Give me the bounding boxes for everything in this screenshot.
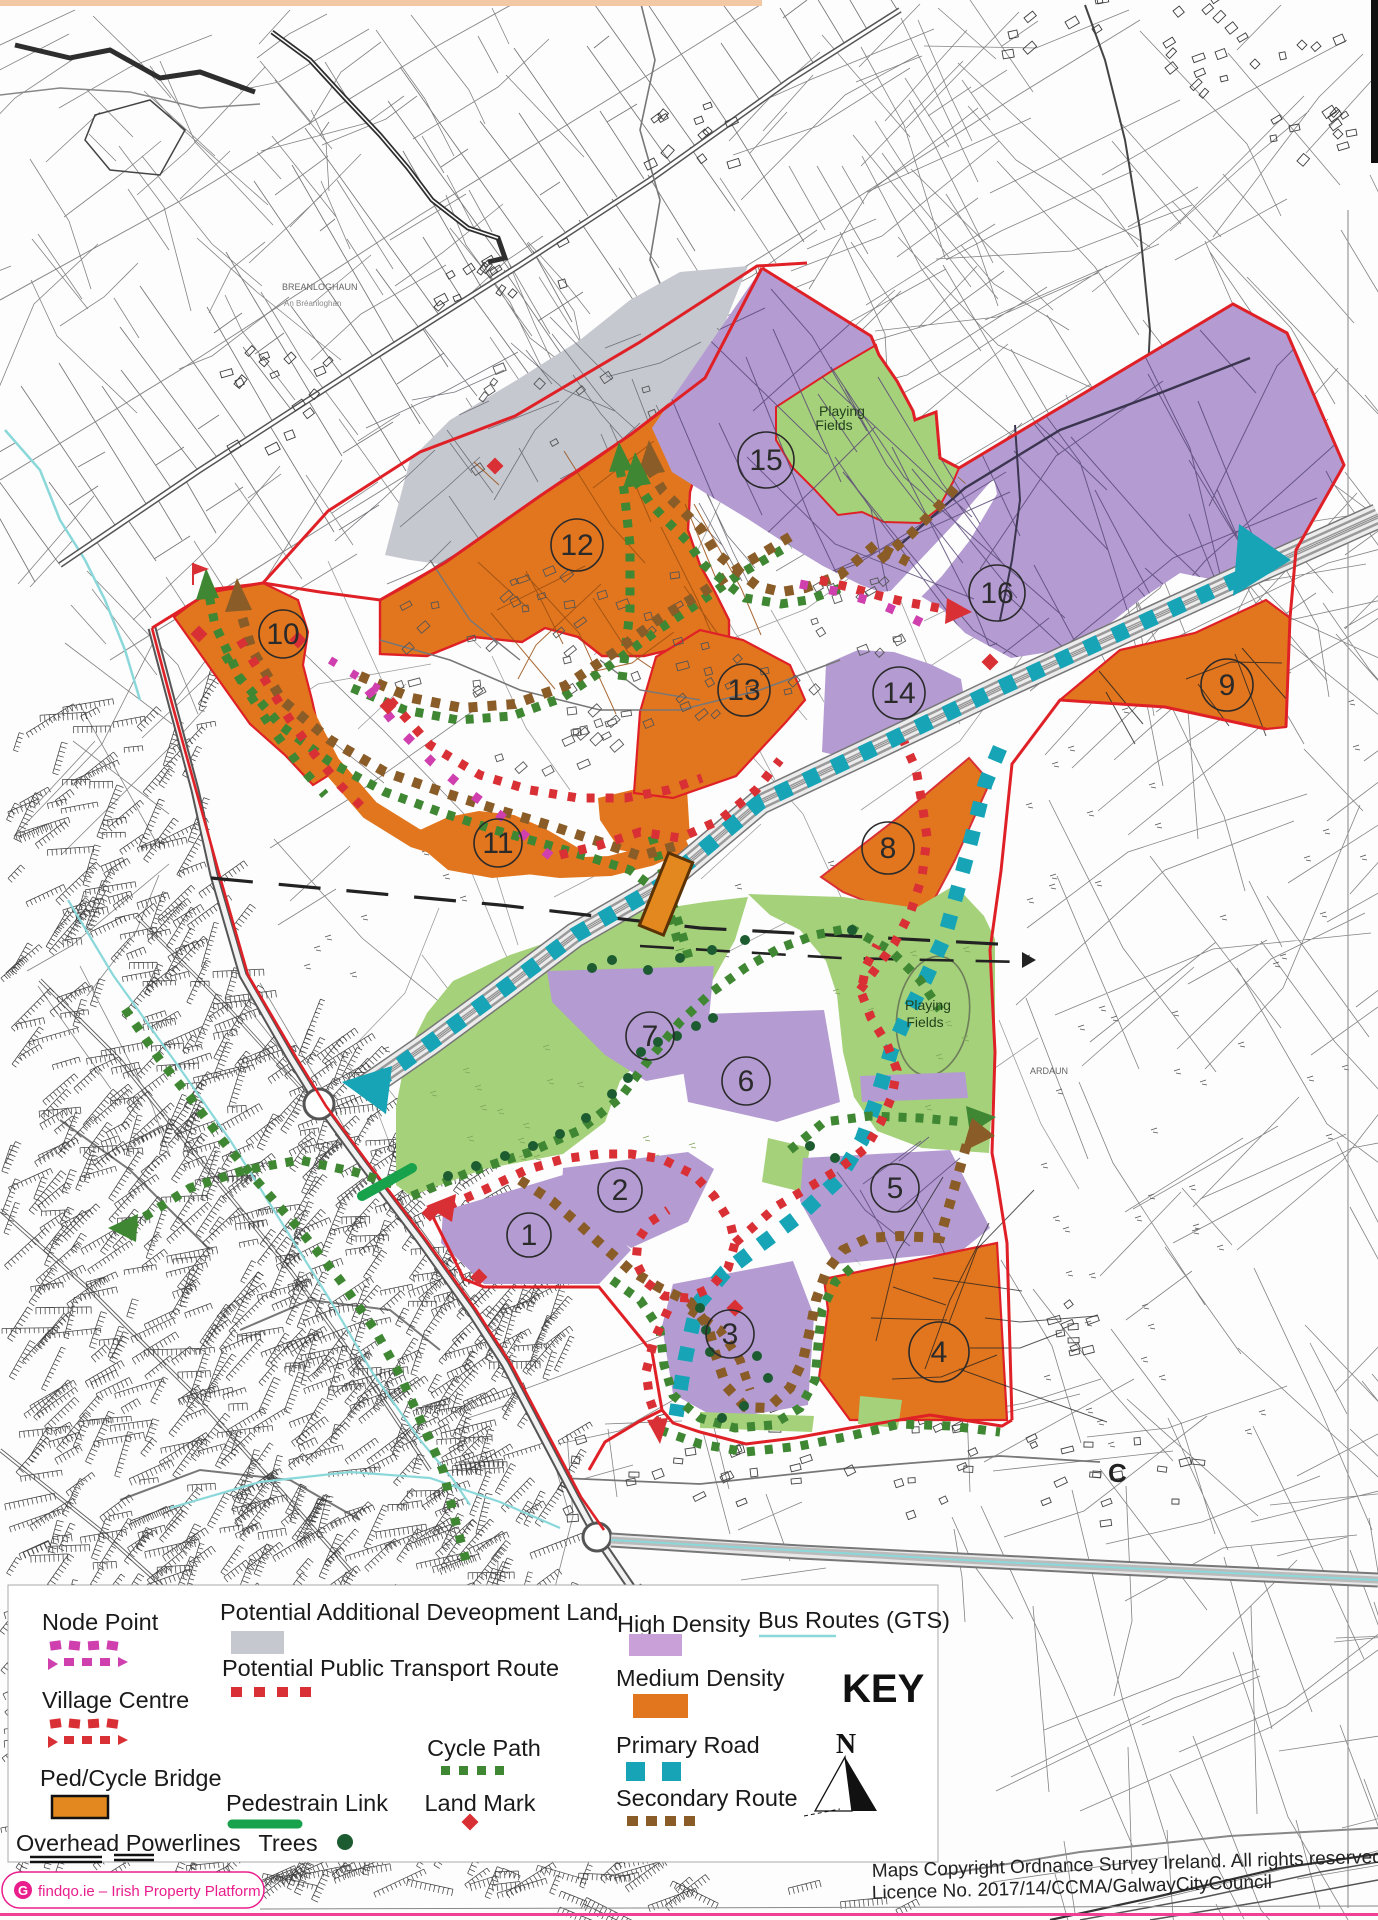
svg-text:C: C (1108, 1458, 1127, 1488)
svg-text:Playing: Playing (905, 997, 951, 1013)
svg-text:7: 7 (642, 1020, 659, 1053)
svg-text:High Density: High Density (617, 1611, 750, 1637)
svg-text:15: 15 (749, 444, 782, 477)
svg-text:G: G (18, 1883, 28, 1898)
svg-text:Potential Public Transport Rou: Potential Public Transport Route (222, 1655, 559, 1681)
svg-text:10: 10 (266, 618, 299, 651)
svg-text:16: 16 (980, 577, 1013, 610)
svg-text:Village Centre: Village Centre (42, 1687, 189, 1713)
svg-text:1: 1 (521, 1219, 538, 1252)
svg-text:Ped/Cycle Bridge: Ped/Cycle Bridge (40, 1765, 222, 1791)
svg-text:6: 6 (738, 1065, 755, 1098)
svg-text:3: 3 (722, 1318, 739, 1351)
svg-text:Medium Density: Medium Density (616, 1665, 785, 1691)
svg-text:BREANLOGHAUN: BREANLOGHAUN (282, 282, 358, 292)
svg-text:Bus Routes (GTS): Bus Routes (GTS) (758, 1607, 950, 1633)
svg-text:Pedestrain Link: Pedestrain Link (226, 1790, 388, 1816)
svg-text:4: 4 (931, 1336, 948, 1369)
svg-text:12: 12 (560, 529, 593, 562)
svg-text:Trees: Trees (258, 1830, 317, 1856)
svg-text:Fields: Fields (906, 1014, 943, 1030)
svg-text:Primary Road: Primary Road (616, 1732, 760, 1758)
svg-text:9: 9 (1219, 669, 1236, 702)
svg-text:Cycle Path: Cycle Path (427, 1735, 541, 1761)
svg-text:8: 8 (880, 832, 897, 865)
svg-text:N: N (836, 1729, 856, 1760)
svg-text:14: 14 (882, 677, 915, 710)
svg-text:Fields: Fields (815, 417, 852, 433)
svg-text:Secondary Route: Secondary Route (616, 1785, 798, 1811)
svg-text:Node Point: Node Point (42, 1609, 159, 1635)
svg-text:11: 11 (482, 827, 513, 860)
svg-text:13: 13 (727, 674, 760, 707)
svg-text:Land Mark: Land Mark (424, 1790, 535, 1816)
svg-text:2: 2 (612, 1174, 629, 1207)
svg-text:Overhead Powerlines: Overhead Powerlines (16, 1830, 241, 1856)
svg-text:An Bréanloghán: An Bréanloghán (284, 299, 341, 308)
svg-text:5: 5 (887, 1172, 904, 1205)
svg-text:KEY: KEY (842, 1667, 925, 1711)
svg-text:Potential Additional Deveopmen: Potential Additional Deveopment Land (220, 1599, 618, 1625)
svg-text:ARDAUN: ARDAUN (1030, 1066, 1068, 1076)
svg-text:findqo.ie – Irish Property Pla: findqo.ie – Irish Property Platform (38, 1883, 261, 1900)
